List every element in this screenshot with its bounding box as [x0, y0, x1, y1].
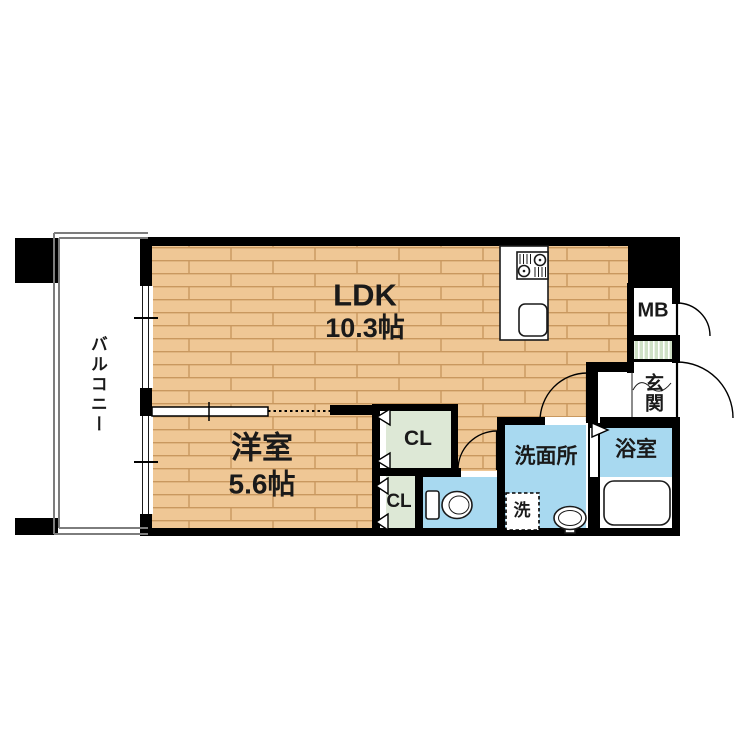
laundry-label: 洗: [514, 502, 531, 520]
stove-burner-1-dot: [539, 259, 542, 262]
bathroom-label: 浴室: [615, 439, 657, 461]
wall-left-3: [140, 514, 152, 536]
wall-mb-left: [627, 283, 634, 373]
wall-right-3: [672, 417, 680, 528]
toilet-bowl-icon: [442, 492, 472, 519]
wall-washroom-left: [497, 417, 505, 528]
wall-left-1: [140, 237, 152, 286]
wall-closet-right: [451, 404, 458, 475]
wall-partition-stub: [330, 405, 378, 415]
washroom-label: 洗面所: [515, 446, 578, 468]
wall-toilet-top: [415, 468, 461, 477]
kitchen-sink-icon: [519, 304, 547, 336]
bathtub-icon: [604, 481, 670, 525]
wall-closet-top: [372, 404, 458, 411]
window-ldk: [139, 286, 153, 388]
balcony-structure: [15, 233, 148, 535]
toilet-tank-icon: [426, 491, 439, 519]
entrance-label: 玄関: [642, 373, 662, 413]
balcony-pillar-top: [15, 238, 58, 283]
mb-door-arc: [677, 303, 710, 336]
wall-corner-tr: [628, 237, 680, 288]
wall-left-2: [140, 388, 152, 416]
floor-plan-drawing: [0, 0, 750, 750]
wall-bottom: [140, 528, 680, 536]
wall-shoebox-bottom: [633, 359, 673, 362]
entrance-door-arc: [677, 362, 733, 418]
wall-mb-top: [627, 283, 673, 288]
shoe-cabinet: [633, 341, 672, 360]
wall-bath-top: [600, 417, 672, 428]
window-bedroom: [139, 416, 153, 514]
entrance-hall-area: [598, 372, 631, 417]
balcony-pillar-bottom: [15, 518, 58, 535]
stove-burner-2-dot: [523, 270, 526, 273]
ldk-size-label: 10.3帖: [325, 314, 405, 342]
bedroom-size-label: 5.6帖: [229, 469, 296, 498]
sliding-door-panel: [152, 407, 268, 416]
wall-right-2: [672, 335, 680, 363]
ldk-label: LDK: [333, 280, 397, 313]
wall-right-1: [672, 288, 680, 304]
closet-upper-label: CL: [404, 428, 432, 450]
corridor-floor: [458, 405, 497, 471]
wall-hall-top: [586, 362, 633, 372]
floor-plan: LDK 10.3帖 洋室 5.6帖 バルコニー CL CL 洗面所 浴室 洗 玄…: [0, 0, 750, 750]
bedroom-label: 洋室: [231, 433, 293, 466]
wall-mb-bottom: [627, 335, 673, 341]
wall-top: [148, 237, 632, 246]
wall-closet-lower-right: [415, 468, 423, 536]
closet-lower-label: CL: [386, 492, 411, 512]
wall-washroom-top: [497, 417, 545, 425]
balcony-label: バルコニー: [88, 335, 106, 435]
meter-box-label: MB: [637, 301, 668, 322]
